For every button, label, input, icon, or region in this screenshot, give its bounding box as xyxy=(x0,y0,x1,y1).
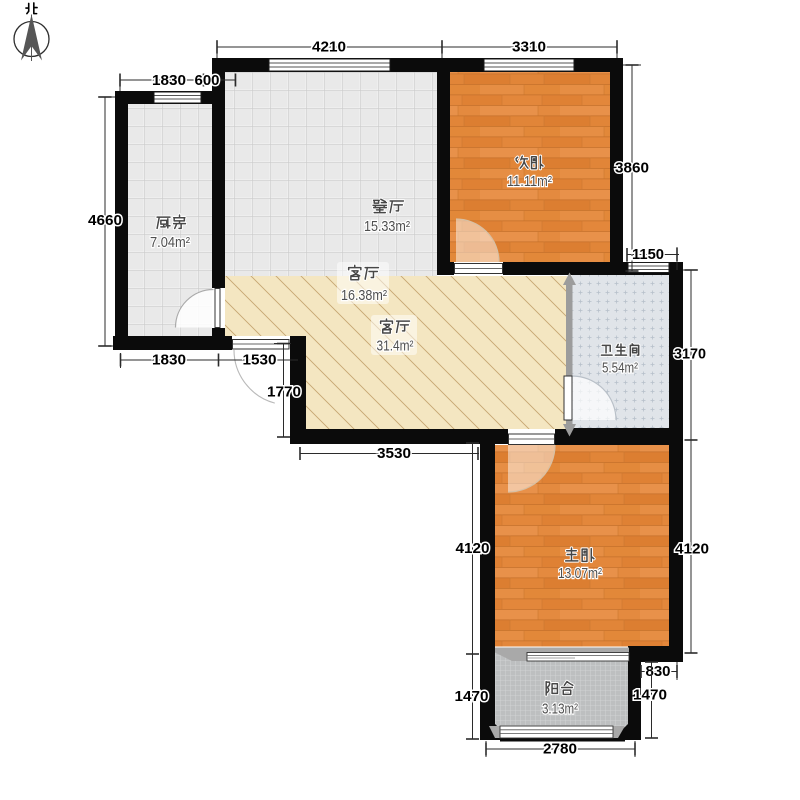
svg-text:1150: 1150 xyxy=(632,246,664,263)
svg-text:5.54m²: 5.54m² xyxy=(602,361,638,377)
svg-text:3530: 3530 xyxy=(377,445,411,462)
svg-text:3310: 3310 xyxy=(512,39,546,56)
svg-text:13.07m²: 13.07m² xyxy=(558,566,602,582)
svg-text:4120: 4120 xyxy=(675,541,709,558)
svg-text:1830: 1830 xyxy=(152,72,186,89)
svg-text:1470: 1470 xyxy=(633,687,667,704)
svg-text:3.13m²: 3.13m² xyxy=(542,702,578,718)
svg-text:4210: 4210 xyxy=(312,39,346,56)
svg-text:1530: 1530 xyxy=(243,352,277,369)
svg-text:4660: 4660 xyxy=(88,212,122,229)
svg-text:4120: 4120 xyxy=(456,540,490,557)
svg-text:31.4m²: 31.4m² xyxy=(377,339,414,355)
svg-text:1470: 1470 xyxy=(455,688,489,705)
svg-text:830: 830 xyxy=(646,663,671,680)
svg-text:1770: 1770 xyxy=(267,384,301,401)
svg-text:2780: 2780 xyxy=(543,741,577,758)
svg-text:11.11m²: 11.11m² xyxy=(507,174,552,190)
svg-text:3860: 3860 xyxy=(615,160,649,177)
svg-text:15.33m²: 15.33m² xyxy=(364,219,410,235)
svg-text:7.04m²: 7.04m² xyxy=(150,235,190,251)
svg-text:3170: 3170 xyxy=(674,346,706,363)
svg-text:1830: 1830 xyxy=(152,352,186,369)
svg-text:600: 600 xyxy=(195,72,220,89)
svg-text:16.38m²: 16.38m² xyxy=(341,288,387,304)
